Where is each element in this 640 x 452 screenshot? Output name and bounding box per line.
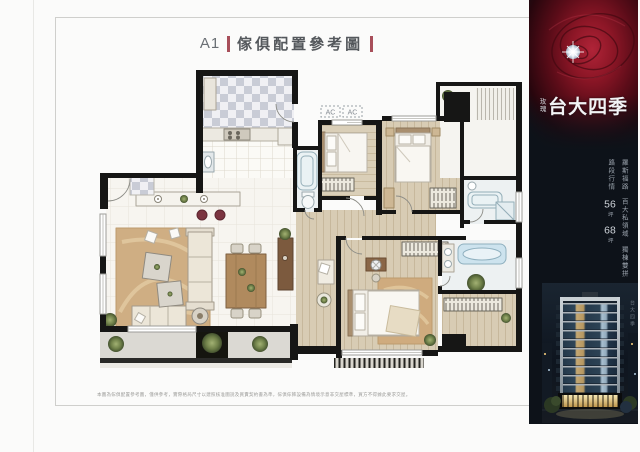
size-56-unit: 坪 [607,212,613,219]
ac-label-2: AC [348,110,358,117]
title-bar-left [227,36,230,52]
side-panel: 玫瑰 台大四季 羅斯福路 百大私領域 獨棟雙拼 路段行情 56坪 68坪 [529,0,638,424]
floor-plan: AC AC [92,62,524,392]
brand-name: 台大四季 [548,92,628,119]
project-brand: 玫瑰 台大四季 [538,92,638,119]
tagline-road: 羅斯福路 [618,159,628,191]
floor-plan-drawing: AC AC [92,62,524,392]
title-text: 傢俱配置參考圖 [237,36,363,53]
page-title: A1傢俱配置參考圖 [150,33,430,54]
size-68: 68 [601,225,618,236]
ac-platform: AC AC [321,106,362,117]
size-68-unit: 坪 [607,238,613,245]
size-56: 56 [601,199,618,210]
scan-edge-line [33,0,34,452]
tagline-domain: 百大私領域 [618,198,628,238]
photo-caption: 台大四季 [629,300,636,328]
rose-image [529,0,638,150]
brand-prefix: 玫瑰 [538,98,545,113]
scanned-flyer-page: { "title": { "prefix": "A1", "text": "傢俱… [0,0,640,452]
plan-unit-code: A1 [200,35,220,52]
tagline-market: 路段行情 [604,159,614,191]
title-bar-right [370,36,373,52]
tagline-column: 羅斯福路 百大私領域 獨棟雙拼 路段行情 56坪 68坪 [601,157,628,317]
ac-label-1: AC [326,110,336,117]
disclaimer-text: 本圖為傢俱配置參考圖，僅供參考，實際格局尺寸以建照核准圖說及買賣契約書為準，傢俱… [97,391,397,398]
tagline-building-type: 獨棟雙拼 [618,246,628,278]
